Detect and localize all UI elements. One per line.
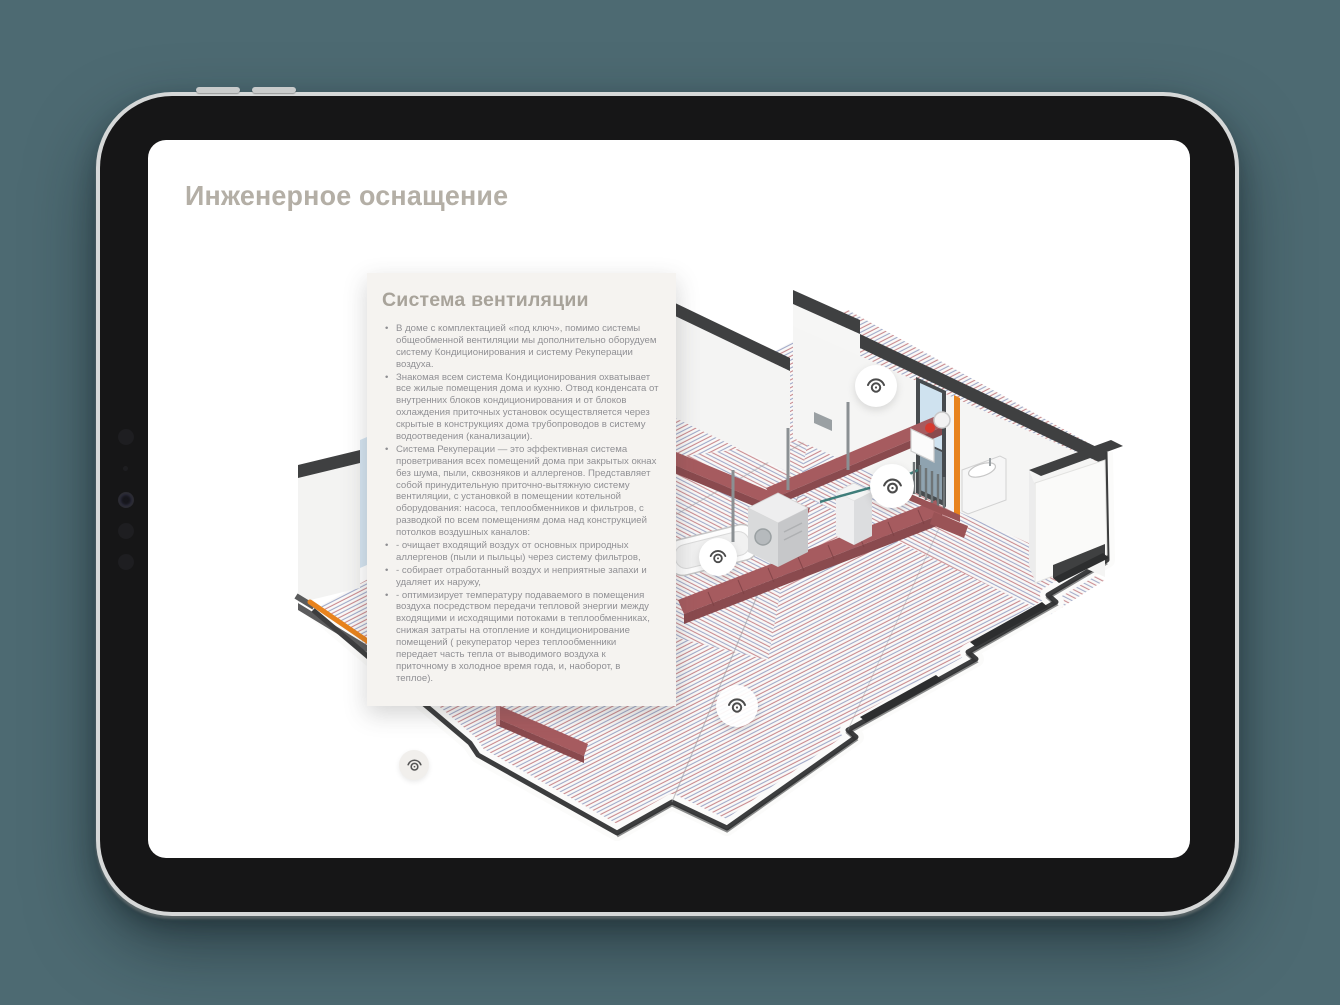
eye-hotspot-4[interactable]: [716, 685, 758, 727]
card-bullet-text: Знакомая всем система Кондиционирования …: [396, 372, 659, 442]
tablet-frame: Инженерное оснащение: [100, 96, 1235, 912]
eye-icon: [880, 474, 905, 499]
ventilation-info-card: Система вентиляции В доме с комплектацие…: [367, 273, 676, 706]
card-bullet: - очищает входящий воздух от основных пр…: [382, 540, 660, 564]
eye-icon: [405, 756, 424, 775]
card-title: Система вентиляции: [382, 289, 660, 312]
eye-hotspot-3[interactable]: [699, 538, 737, 576]
card-bullet: В доме с комплектацией «под ключ», помим…: [382, 323, 660, 371]
eye-icon: [707, 546, 729, 568]
card-bullet: Знакомая всем система Кондиционирования …: [382, 372, 660, 443]
recuperator-unit: [748, 493, 808, 567]
eye-hotspot-1[interactable]: [855, 365, 897, 407]
card-bullet-text: - собирает отработанный воздух и неприят…: [396, 565, 647, 588]
card-bullet-text: - оптимизирует температуру подаваемого в…: [396, 590, 650, 684]
camera-sensor-icon: [118, 554, 134, 570]
presentation-screen: Инженерное оснащение: [148, 140, 1190, 858]
volume-down-button: [252, 87, 296, 93]
card-bullet-text: - очищает входящий воздух от основных пр…: [396, 540, 641, 563]
card-bullet-text: В доме с комплектацией «под ключ», помим…: [396, 323, 656, 370]
card-bullet: - собирает отработанный воздух и неприят…: [382, 565, 660, 589]
orange-riser-pipe: [954, 395, 960, 518]
camera-sensor-icon: [118, 429, 134, 445]
card-bullet: - оптимизирует температуру подаваемого в…: [382, 590, 660, 685]
card-bullet-text: Система Рекуперации — это эффективная си…: [396, 444, 656, 538]
card-bullet: Система Рекуперации — это эффективная си…: [382, 444, 660, 539]
camera-sensor-icon: [118, 523, 134, 539]
front-camera-lens: [120, 494, 132, 506]
camera-mic-dot: [123, 466, 128, 471]
eye-icon: [725, 694, 749, 718]
eye-hotspot-2[interactable]: [870, 464, 914, 508]
eye-hotspot-5[interactable]: [399, 750, 429, 780]
eye-icon: [864, 374, 888, 398]
volume-up-button: [196, 87, 240, 93]
stage: Инженерное оснащение: [0, 0, 1340, 1005]
card-bullet-list: В доме с комплектацией «под ключ», помим…: [382, 323, 660, 685]
